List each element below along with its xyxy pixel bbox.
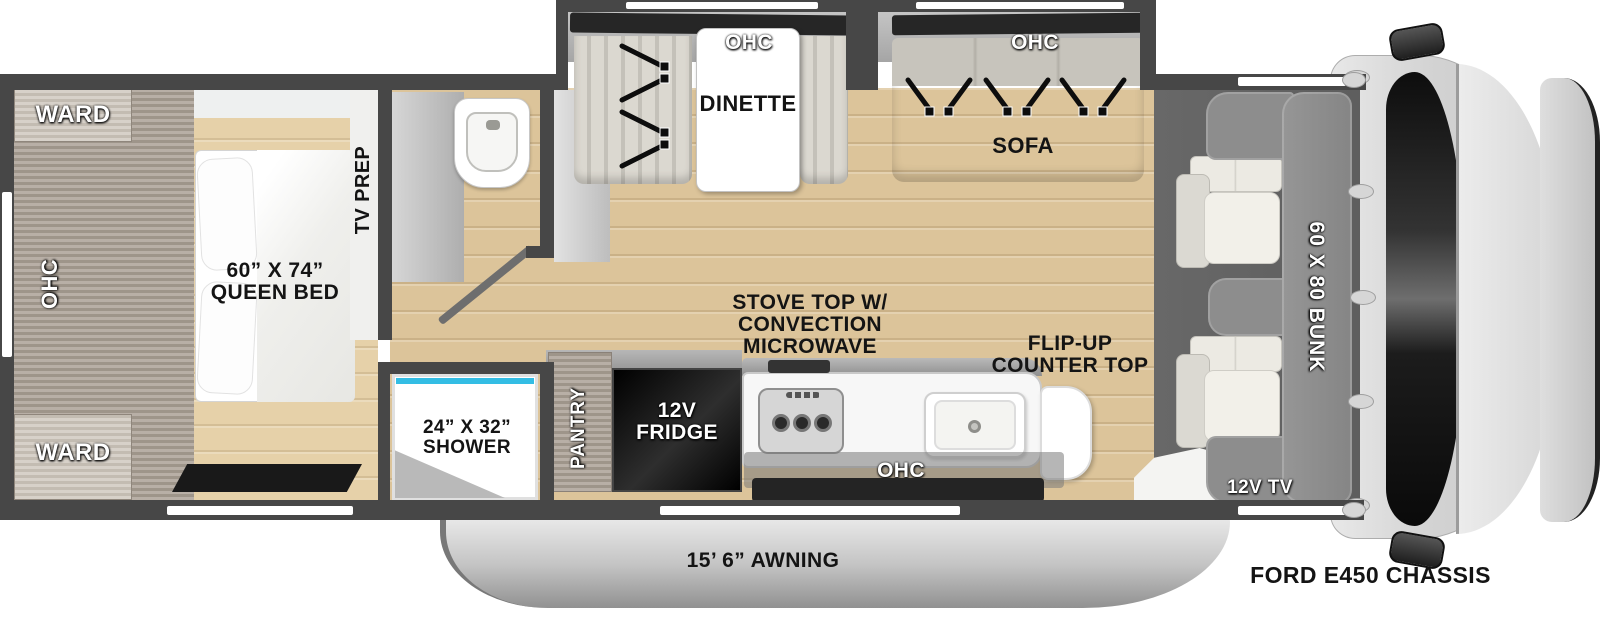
- stove-burner: [793, 414, 811, 432]
- bunk-arm-top: [1206, 92, 1294, 160]
- body-rivet: [1348, 394, 1374, 409]
- rv-floorplan: 15’ 6” AWNING WARD WARD OHC 60” X 74” QU…: [0, 0, 1600, 619]
- seatbelt-icon: [978, 76, 1056, 122]
- shower-right-wall: [540, 362, 554, 500]
- body-rivet: [1350, 290, 1376, 305]
- bathroom-left-wall: [378, 74, 392, 340]
- toilet-drain: [486, 120, 500, 130]
- shower-glass-accent: [396, 378, 534, 384]
- top-wall-left: [0, 74, 556, 90]
- bedroom-bottom-window: [167, 506, 353, 515]
- bathroom-wall-stub: [526, 246, 554, 258]
- slide-left-wall: [556, 0, 568, 90]
- cab-tv-label: 12V TV: [1205, 478, 1315, 498]
- shower-label: 24” X 32” SHOWER: [397, 418, 537, 458]
- awning-rail-cap: [1342, 72, 1366, 88]
- sofa-ohc-label: OHC: [992, 32, 1078, 54]
- sink-drain: [968, 420, 981, 433]
- seatbelt-icon: [1054, 76, 1132, 122]
- bathroom-right-wall: [540, 74, 554, 252]
- body-rivet: [1348, 184, 1374, 199]
- fridge-label: 12V FRIDGE: [612, 400, 742, 444]
- stove-burner: [772, 414, 790, 432]
- stove-label: STOVE TOP W/ CONVECTION MICROWAVE: [722, 292, 898, 358]
- dinette-bench-right: [800, 36, 848, 184]
- pantry-label: PANTRY: [569, 358, 591, 498]
- bedroom-ohc-label: OHC: [38, 214, 62, 354]
- kitchen-window-bar: [752, 478, 1044, 502]
- cab-top-awning-rail: [1238, 77, 1346, 86]
- flip-up-label: FLIP-UP COUNTER TOP: [980, 333, 1160, 377]
- seatbelt-icon: [618, 40, 676, 104]
- entry-door-strip: [1238, 506, 1346, 515]
- wardrobe-top-label: WARD: [14, 102, 132, 127]
- passenger-seat-cushion: [1204, 370, 1280, 442]
- chassis-label: FORD E450 CHASSIS: [1248, 563, 1493, 587]
- tv-prep-label: TV PREP: [353, 110, 375, 270]
- slide-right-wall: [1140, 0, 1156, 90]
- entry-rug: [172, 464, 362, 492]
- wardrobe-bottom-label: WARD: [14, 440, 132, 465]
- kitchen-bottom-window: [660, 506, 960, 515]
- sofa-label: SOFA: [968, 134, 1078, 157]
- slide-divider-wall: [846, 0, 878, 90]
- awning-label: 15’ 6” AWNING: [638, 550, 888, 572]
- pillow: [196, 157, 258, 272]
- seatbelt-icon: [900, 76, 978, 122]
- dinette-ohc-label: OHC: [706, 32, 792, 54]
- dinette-label: DINETTE: [694, 92, 802, 115]
- dinette-slide-window: [626, 2, 818, 9]
- awning-rail-cap: [1342, 502, 1366, 518]
- driver-seat-cushion: [1204, 192, 1280, 264]
- shower-top-wall: [378, 362, 554, 374]
- bed-head-wall-strip: [194, 88, 352, 118]
- stove-burner: [814, 414, 832, 432]
- stove-knobs: [786, 392, 820, 398]
- front-bumper: [1540, 78, 1600, 522]
- seatbelt-icon: [618, 106, 676, 170]
- range-vent: [768, 360, 830, 373]
- sofa-slide-window: [916, 2, 1124, 9]
- bedroom-window: [2, 192, 12, 357]
- bunk-label: 60 X 80 BUNK: [1305, 177, 1327, 417]
- shower-left-wall: [378, 362, 390, 500]
- queen-bed-label: 60” X 74” QUEEN BED: [190, 260, 360, 304]
